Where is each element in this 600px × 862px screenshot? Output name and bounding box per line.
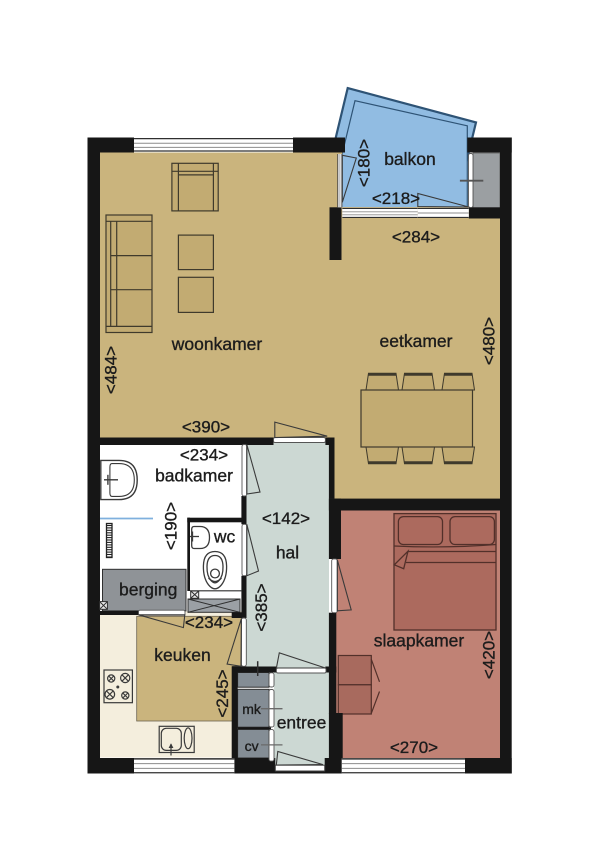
svg-text:keuken: keuken xyxy=(154,645,210,665)
svg-text:hal: hal xyxy=(276,543,299,563)
svg-text:<234>: <234> xyxy=(185,613,233,632)
svg-text:berging: berging xyxy=(119,579,177,599)
svg-text:<218>: <218> xyxy=(372,189,420,208)
svg-text:balkon: balkon xyxy=(384,149,436,169)
svg-text:wc: wc xyxy=(213,527,236,547)
svg-text:<142>: <142> xyxy=(262,509,310,528)
svg-text:<480>: <480> xyxy=(480,317,499,365)
svg-text:<270>: <270> xyxy=(390,738,438,757)
svg-text:entree: entree xyxy=(277,712,327,732)
svg-text:<385>: <385> xyxy=(252,583,271,631)
svg-text:cv: cv xyxy=(245,738,259,754)
svg-text:<190>: <190> xyxy=(162,502,181,550)
svg-text:slaapkamer: slaapkamer xyxy=(374,631,465,651)
svg-text:<180>: <180> xyxy=(355,139,374,187)
svg-text:woonkamer: woonkamer xyxy=(171,334,263,354)
svg-text:<420>: <420> xyxy=(480,631,499,679)
svg-text:<484>: <484> xyxy=(102,346,121,394)
svg-text:badkamer: badkamer xyxy=(155,466,233,486)
svg-text:mk: mk xyxy=(242,701,262,717)
svg-text:eetkamer: eetkamer xyxy=(380,331,453,351)
svg-text:<390>: <390> xyxy=(182,418,230,437)
svg-text:<284>: <284> xyxy=(392,228,440,247)
svg-text:<245>: <245> xyxy=(213,669,232,717)
svg-text:<234>: <234> xyxy=(180,446,228,465)
